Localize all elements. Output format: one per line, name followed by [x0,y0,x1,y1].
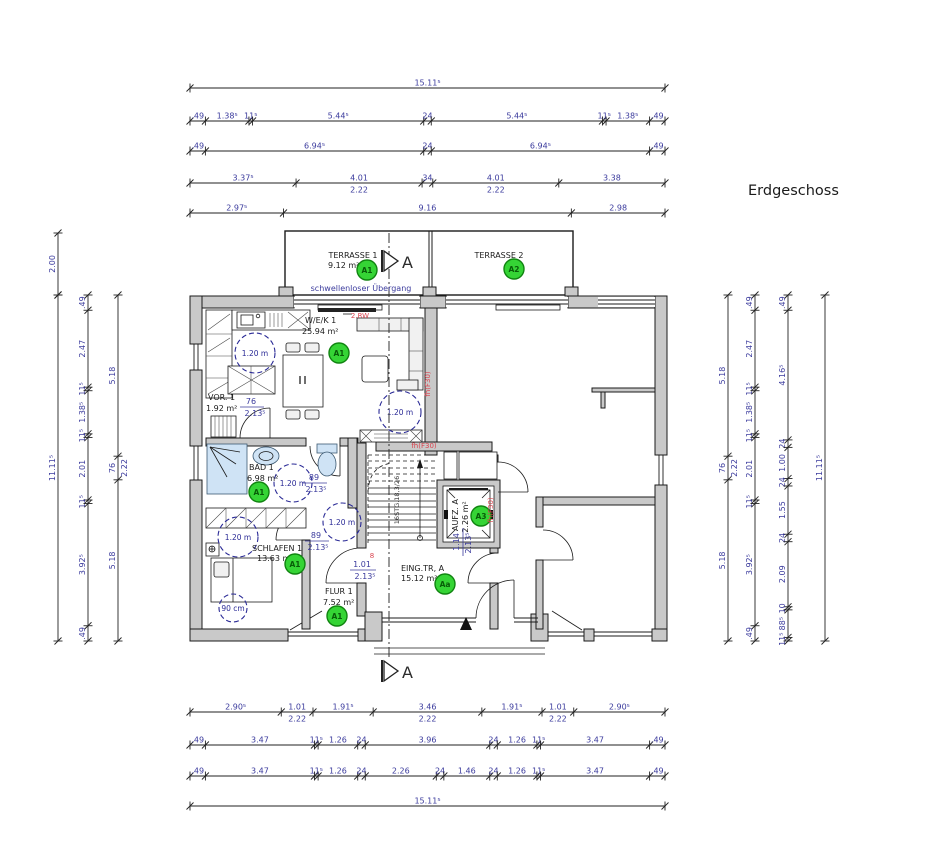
svg-text:.49: .49 [191,112,204,121]
svg-text:1.38⁵: 1.38⁵ [217,112,238,121]
svg-text:5.18: 5.18 [108,552,117,570]
svg-text:1.91⁵: 1.91⁵ [333,703,354,712]
dining-set [283,343,323,419]
svg-text:.49: .49 [78,296,87,309]
door-dim: 2.13⁵ [307,543,328,552]
svg-text:3.47: 3.47 [586,736,604,745]
stair-note: 16STG.18,3/26 [393,476,401,524]
svg-text:.49: .49 [191,142,204,151]
circle-label: 1.20 m [387,408,413,417]
svg-text:A2: A2 [508,265,519,274]
floorplan-page: 16STG.18,3/26 [0,0,949,856]
svg-text:2.47: 2.47 [78,340,87,358]
svg-text:1.26: 1.26 [329,736,347,745]
svg-text:A1: A1 [253,488,264,497]
svg-text:4.01: 4.01 [487,174,505,183]
svg-text:Aa: Aa [440,580,451,589]
svg-text:4.01: 4.01 [350,174,368,183]
unit-badge: A1 [329,343,349,363]
dim-chain-right-2: .492.4711⁵1.38⁵11⁵2.0111⁵3.92⁵.49 [745,292,760,645]
svg-text:11.11⁵: 11.11⁵ [48,455,57,481]
room-name-flur: FLUR 1 [325,587,353,596]
svg-text:3.92⁵: 3.92⁵ [78,554,87,575]
svg-text:.49: .49 [778,296,787,309]
room-name-schlafen: SCHLAFEN 1 [252,544,302,553]
svg-text:3.47: 3.47 [586,767,604,776]
svg-text:9.16: 9.16 [419,204,437,213]
door-dim: 2.13⁵ [464,532,473,553]
door-dim: 89 [309,473,319,482]
svg-text:1.01: 1.01 [288,703,306,712]
dim-chain-left-3: 5.18762.225.18 [108,292,129,645]
dim-chain-bottom-overall: 15.11⁵ [187,797,669,811]
svg-text:3.46: 3.46 [419,703,437,712]
door-symbol: 8 [370,552,374,560]
dim-chain-left-overall: 11.11⁵ [48,292,63,645]
unit-badge: A1 [357,260,377,280]
unit-badge: Aa [435,574,455,594]
svg-text:11⁵: 11⁵ [532,736,545,745]
dim-chain-top-2: .491.38⁵11⁵5.44⁵245.44⁵11⁵1.38⁵.49 [187,112,669,126]
door-dim: 89 [311,531,321,540]
door-dim: 1.01 [353,560,371,569]
svg-text:1.26: 1.26 [508,767,526,776]
room-name-bad: BAD 1 [249,463,274,472]
svg-text:11⁵: 11⁵ [244,112,257,121]
svg-text:1.01: 1.01 [549,703,567,712]
svg-text:3.37⁵: 3.37⁵ [233,174,254,183]
svg-text:5.18: 5.18 [718,552,727,570]
svg-text:3.47: 3.47 [251,767,269,776]
svg-text:A1: A1 [289,560,300,569]
dim-chain-top-overall: 15.11⁵ [187,79,669,93]
dim-chain-left-terrace: 2.00 [48,230,63,299]
svg-text:2.26: 2.26 [392,767,410,776]
svg-text:2.00: 2.00 [48,255,57,273]
svg-text:6.94⁵: 6.94⁵ [304,142,325,151]
door-dim: 2.13⁵ [244,409,265,418]
svg-text:1.00: 1.00 [778,454,787,472]
dim-chain-right-3: .494.16⁵241.00241.55242.091088⁵11⁵ [778,292,793,646]
circle-label: 1.20 m [242,349,268,358]
svg-text:2.90⁵: 2.90⁵ [225,703,246,712]
svg-text:.49: .49 [78,627,87,640]
circle-label: 1.20 m [280,479,306,488]
fire-note: fh(F30) [424,371,432,397]
svg-text:5.44⁵: 5.44⁵ [506,112,527,121]
svg-text:2.22: 2.22 [730,459,739,477]
small-circle-label: 90 cm [221,604,244,613]
svg-text:11.11⁵: 11.11⁵ [815,455,824,481]
svg-text:1.26: 1.26 [329,767,347,776]
svg-text:4.16⁵: 4.16⁵ [778,365,787,386]
svg-text:3.96: 3.96 [419,736,437,745]
svg-text:1.38⁵: 1.38⁵ [78,402,87,423]
svg-text:2.97⁵: 2.97⁵ [226,204,247,213]
svg-text:1.38⁵: 1.38⁵ [617,112,638,121]
staircase: 16STG.18,3/26 [368,455,436,543]
svg-text:.49: .49 [745,627,754,640]
svg-text:11⁵: 11⁵ [310,736,323,745]
svg-text:15.11⁵: 15.11⁵ [414,797,440,806]
svg-text:.49: .49 [191,736,204,745]
dim-chain-bottom-1: 2.90⁵1.012.221.91⁵3.462.221.91⁵1.012.222… [187,703,669,724]
dim-chain-top-5: 2.97⁵9.162.98 [187,204,669,218]
svg-text:.49: .49 [651,736,664,745]
room-name-eingtr: EING.TR, A [401,564,445,573]
svg-text:A1: A1 [361,266,372,275]
room-name-aufzug: AUFZ. A [451,498,460,530]
svg-text:3.38: 3.38 [603,174,621,183]
svg-text:3.47: 3.47 [251,736,269,745]
svg-text:6.94⁵: 6.94⁵ [530,142,551,151]
svg-text:5.18: 5.18 [718,367,727,385]
svg-text:76: 76 [718,463,727,473]
fire-note: fh(F30) [487,497,495,523]
svg-text:2.22: 2.22 [288,715,306,724]
svg-text:1.38⁵: 1.38⁵ [745,402,754,423]
dim-chain-right-1: 5.18762.225.18 [718,292,739,645]
door-dim: 2.13⁵ [305,485,326,494]
svg-text:5.18: 5.18 [108,367,117,385]
svg-text:2.47: 2.47 [745,340,754,358]
svg-text:5.44⁵: 5.44⁵ [328,112,349,121]
svg-text:2.22: 2.22 [549,715,567,724]
svg-text:2.09: 2.09 [778,565,787,583]
room-area-wek: 25.94 m² [302,327,338,336]
room-name-terrasse1: TERRASSE 1 [327,251,377,260]
svg-text:76: 76 [108,463,117,473]
dim-chain-top-4: 3.37⁵4.012.22344.012.223.38 [187,174,669,195]
svg-text:2.22: 2.22 [487,186,505,195]
svg-text:A1: A1 [331,612,342,621]
room-area-vor: 1.92 m² [206,404,237,413]
note-transition: schwellenloser Übergang [311,283,412,293]
door-dim: 1.14 [452,533,461,551]
svg-text:A1: A1 [333,349,344,358]
svg-text:11⁵: 11⁵ [310,767,323,776]
svg-text:2.01: 2.01 [78,460,87,478]
svg-text:2.22: 2.22 [350,186,368,195]
note-rescue-route: 2.RW [351,312,369,320]
fire-note: fh(F30) [411,442,437,450]
svg-text:88⁵: 88⁵ [778,617,787,630]
svg-text:1.55: 1.55 [778,501,787,519]
svg-text:11⁵: 11⁵ [598,112,611,121]
svg-text:34: 34 [422,174,432,183]
unit-badge: A1 [285,554,305,574]
entrance-arrow [460,617,472,630]
svg-text:15.11⁵: 15.11⁵ [414,79,440,88]
svg-text:2.22: 2.22 [120,459,129,477]
room-area-aufzug: 2.26 m² [461,501,470,532]
svg-text:2.90⁵: 2.90⁵ [609,703,630,712]
svg-text:A3: A3 [475,512,486,521]
section-marker-bottom: A [402,663,413,682]
unit-badge: A2 [504,259,524,279]
door-dim: 2.13⁵ [354,572,375,581]
svg-text:.49: .49 [651,112,664,121]
svg-text:.49: .49 [651,767,664,776]
svg-text:.49: .49 [191,767,204,776]
room-area-eingtr: 15.12 m² [401,574,437,583]
circle-label: 1.20 m [329,518,355,527]
svg-text:1.91⁵: 1.91⁵ [501,703,522,712]
dim-chain-left-2: .492.4711⁵1.38⁵11⁵2.0111⁵3.92⁵.49 [78,292,93,645]
circle-label: 1.20 m [225,533,251,542]
unit-badge: A1 [327,606,347,626]
svg-text:2.22: 2.22 [419,715,437,724]
svg-text:2.98: 2.98 [609,204,627,213]
svg-text:3.92⁵: 3.92⁵ [745,554,754,575]
svg-text:1.26: 1.26 [508,736,526,745]
dim-chain-bottom-3: .493.4711⁵1.26242.26241.46241.2611⁵3.47.… [187,767,669,781]
room-name-wek: W/E/K 1 [305,316,336,325]
dim-chain-right-overall: 11.11⁵ [815,292,830,645]
svg-text:.49: .49 [651,142,664,151]
vestibule-furniture [211,416,236,437]
dim-chain-top-3: .496.94⁵246.94⁵.49 [187,142,669,156]
svg-text:2.01: 2.01 [745,460,754,478]
page-title: Erdgeschoss [748,183,839,199]
room-area-terrasse1: 9.12 m² [328,261,359,270]
svg-text:.49: .49 [745,296,754,309]
unit-badge: A1 [249,482,269,502]
svg-text:1.46: 1.46 [458,767,476,776]
floorplan-drawing: 16STG.18,3/26 [0,0,949,856]
entry-area [374,580,545,654]
svg-text:11⁵: 11⁵ [532,767,545,776]
door-dim: 76 [246,397,256,406]
dim-chain-bottom-2: .493.4711⁵1.26243.96241.2611⁵3.47.49 [187,736,669,750]
room-area-bad: 6.98 m² [247,474,278,483]
section-marker-top: A [402,253,413,272]
room-name-vor: VOR. 1 [208,393,235,402]
